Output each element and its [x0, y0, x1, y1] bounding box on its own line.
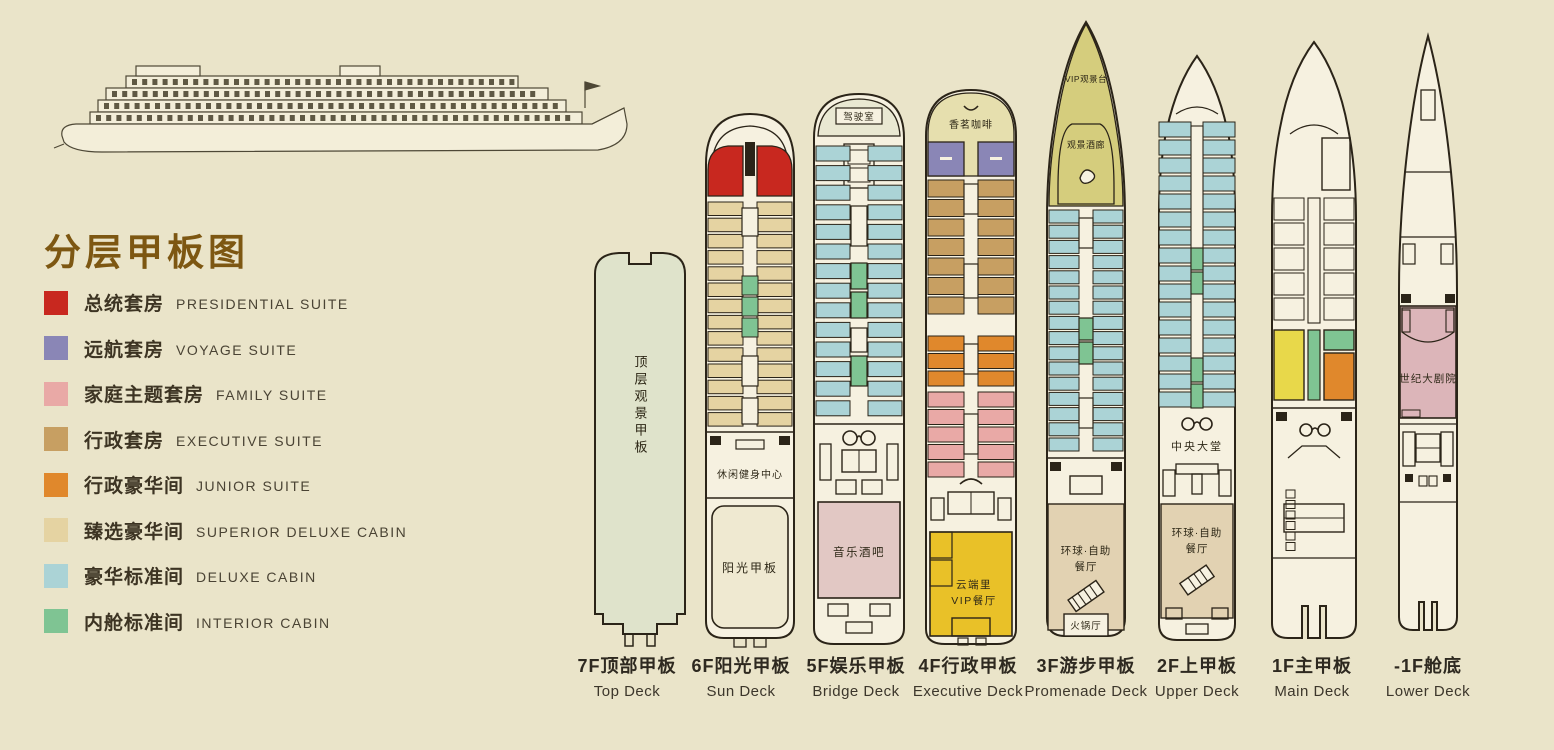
junior-room-right — [1324, 353, 1354, 400]
interior-cabin-center — [851, 263, 867, 289]
legend-cn-label: 豪华标准间 — [84, 562, 184, 589]
executive-suites-left — [928, 180, 964, 314]
theatre-area — [1400, 306, 1456, 418]
theatre-label: 世纪大剧院 — [1399, 372, 1457, 385]
deck-plan-6f-sun-deck: 休闲健身中心 阳光甲板 — [698, 106, 802, 654]
presidential-suite-right — [757, 146, 792, 196]
deck-name-cn: -1F舱底 — [1348, 652, 1508, 678]
central-lobby-label: 中央大堂 — [1171, 439, 1223, 453]
interior-cabin-center — [1191, 248, 1203, 270]
interior-cabin-center — [1079, 342, 1093, 364]
legend-en-label: EXECUTIVE SUITE — [176, 430, 323, 449]
family-suite-swatch — [44, 382, 68, 406]
interior-cabin-center — [1191, 358, 1203, 382]
cafe-label: 香茗咖啡 — [949, 119, 993, 131]
legend-cn-label: 臻选豪华间 — [84, 517, 184, 544]
executive-suite-swatch — [44, 427, 68, 451]
caption-lower-deck: -1F舱底 Lower Deck — [1348, 652, 1508, 700]
buffet-restaurant-label-line2: 餐厅 — [1075, 560, 1098, 573]
sun-deck-area-label: 阳光甲板 — [722, 561, 778, 575]
buffet-restaurant-label-line2: 餐厅 — [1186, 542, 1209, 555]
service-rooms-right — [1324, 198, 1354, 320]
legend-cn-label: 远航套房 — [84, 335, 164, 362]
family-suites-right — [978, 392, 1014, 477]
deck-plan-1f-main-deck — [1258, 38, 1370, 654]
bar-label: 音乐酒吧 — [833, 545, 885, 559]
deck-plan-3f-promenade-deck: VIP观景台 观景酒廊 环球·自助 餐厅 火锅厅 — [1032, 18, 1140, 654]
ship-side-profile — [40, 52, 640, 177]
legend-cn-label: 行政套房 — [84, 426, 164, 453]
legend-en-label: JUNIOR SUITE — [196, 475, 311, 494]
activity-room-yellow — [1274, 330, 1304, 400]
junior-suites-right — [978, 336, 1014, 386]
executive-suites-right — [978, 180, 1014, 314]
legend-item-superior-deluxe-cabin: 臻选豪华间 SUPERIOR DELUXE CABIN — [44, 516, 474, 545]
page-title: 分层甲板图 — [44, 222, 249, 276]
legend-en-label: VOYAGE SUITE — [176, 339, 297, 358]
family-suites-left — [928, 392, 964, 477]
voyage-suite-swatch — [44, 336, 68, 360]
cabin-legend: 总统套房 PRESIDENTIAL SUITE 远航套房 VOYAGE SUIT… — [44, 288, 474, 652]
legend-en-label: PRESIDENTIAL SUITE — [176, 293, 349, 312]
legend-cn-label: 内舱标准间 — [84, 608, 184, 635]
profile-top-structure — [136, 66, 200, 76]
legend-item-junior-suite: 行政豪华间 JUNIOR SUITE — [44, 470, 474, 499]
profile-funnel — [340, 66, 380, 76]
legend-cn-label: 家庭主题套房 — [84, 380, 204, 407]
legend-item-deluxe-cabin: 豪华标准间 DELUXE CABIN — [44, 561, 474, 590]
service-rooms-left — [1274, 198, 1304, 320]
deck-plan-5f-bridge-deck: 驾驶室 音乐酒吧 — [806, 88, 912, 654]
legend-en-label: INTERIOR CABIN — [196, 612, 331, 631]
buffet-restaurant-area — [1161, 504, 1233, 618]
interior-room-center — [1308, 330, 1320, 400]
interior-cabin-center — [1191, 272, 1203, 294]
legend-item-voyage-suite: 远航套房 VOYAGE SUITE — [44, 334, 474, 363]
deck-plan-7f-top-deck: 顶层观景甲板 — [585, 248, 695, 653]
deck-plan-minus1f-lower-deck: 世纪大剧院 — [1382, 32, 1474, 654]
bow-stair-block — [745, 142, 755, 176]
legend-item-family-suite: 家庭主题套房 FAMILY SUITE — [44, 379, 474, 408]
interior-room-right — [1324, 330, 1354, 350]
buffet-restaurant-label-line1: 环球·自助 — [1172, 526, 1223, 539]
gym-area-label: 休闲健身中心 — [717, 468, 783, 481]
lounge-bar-label: 观景酒廊 — [1067, 139, 1105, 150]
hotpot-label: 火锅厅 — [1070, 621, 1102, 632]
junior-suites-left — [928, 336, 964, 386]
deck-plan-2f-upper-deck: 中央大堂 环球·自助 餐厅 — [1146, 52, 1248, 654]
buffet-restaurant-label-line1: 环球·自助 — [1061, 544, 1112, 557]
legend-en-label: FAMILY SUITE — [216, 384, 328, 403]
interior-cabin-center — [1191, 384, 1203, 408]
top-deck-area-label: 顶层观景甲板 — [633, 355, 648, 457]
deck-plan-4f-executive-deck: 香茗咖啡 云端里 VIP餐厅 — [918, 84, 1024, 656]
presidential-suite-left — [708, 146, 743, 196]
deck-name-en: Lower Deck — [1348, 683, 1508, 700]
junior-suite-swatch — [44, 473, 68, 497]
vip-restaurant-label-line1: 云端里 — [956, 578, 992, 591]
legend-en-label: DELUXE CABIN — [196, 566, 317, 585]
legend-item-presidential-suite: 总统套房 PRESIDENTIAL SUITE — [44, 288, 474, 317]
deck-plan-infographic: 分层甲板图 总统套房 PRESIDENTIAL SUITE 远航套房 VOYAG… — [0, 0, 1554, 750]
legend-cn-label: 行政豪华间 — [84, 471, 184, 498]
presidential-suite-swatch — [44, 291, 68, 315]
bridge-label: 驾驶室 — [843, 111, 875, 123]
interior-cabin-center — [1079, 318, 1093, 340]
superior-deluxe-swatch — [44, 518, 68, 542]
legend-item-executive-suite: 行政套房 EXECUTIVE SUITE — [44, 425, 474, 454]
interior-cabin-swatch — [44, 609, 68, 633]
legend-en-label: SUPERIOR DELUXE CABIN — [196, 521, 407, 540]
deluxe-cabin-swatch — [44, 564, 68, 588]
vip-view-label: VIP观景台 — [1065, 74, 1107, 84]
vip-restaurant-label-line2: VIP餐厅 — [951, 594, 996, 607]
interior-cabin-center — [851, 356, 867, 386]
interior-cabins-center — [742, 276, 758, 337]
legend-item-interior-cabin: 内舱标准间 INTERIOR CABIN — [44, 607, 474, 636]
legend-cn-label: 总统套房 — [84, 289, 164, 316]
interior-cabin-center — [851, 292, 867, 318]
